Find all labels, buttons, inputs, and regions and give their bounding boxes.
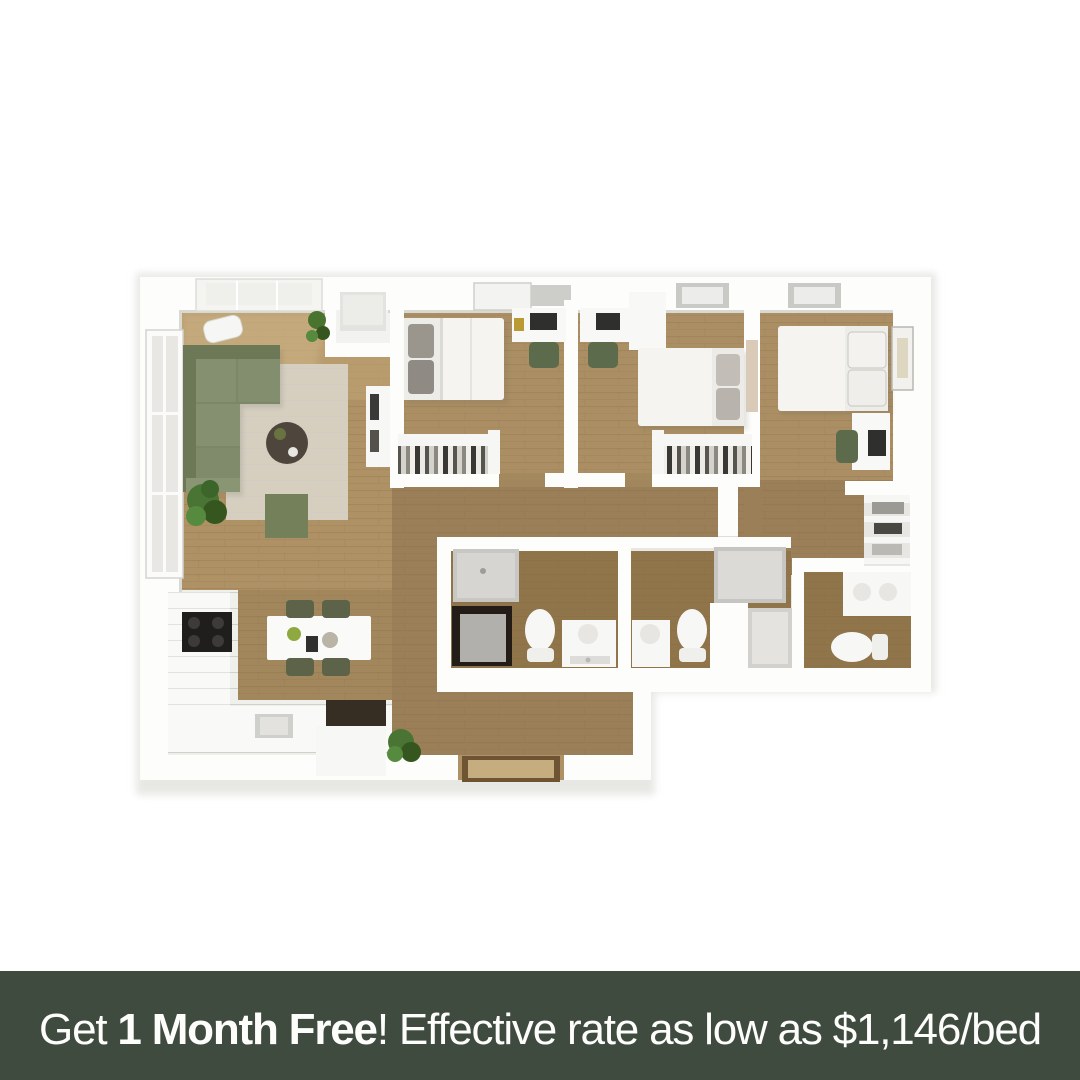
svg-text:Get 1 Month Free! Effective ra: Get 1 Month Free! Effective rate as low … bbox=[39, 1005, 1041, 1054]
